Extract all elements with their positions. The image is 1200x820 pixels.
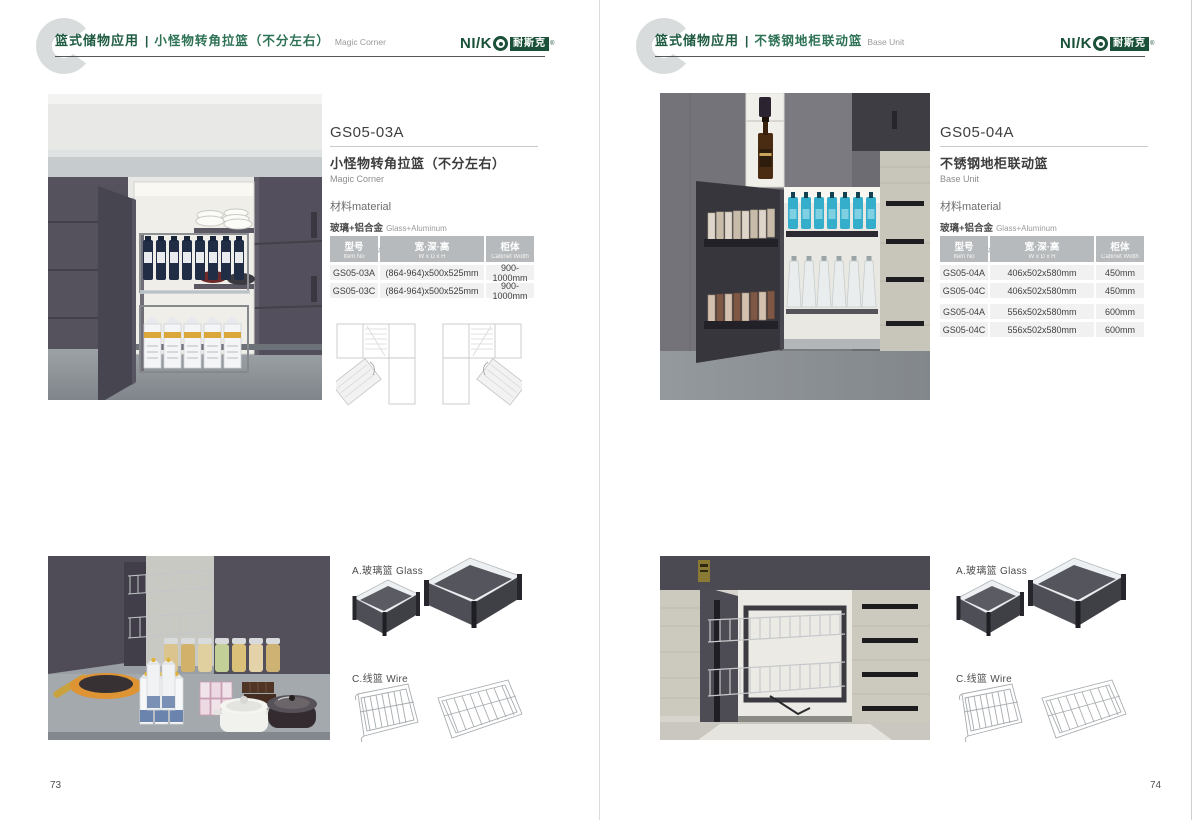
wire-basket-label: C.线篮 Wire: [352, 670, 408, 685]
page-number: 74: [1150, 780, 1161, 791]
wire-basket-image: [350, 676, 525, 746]
table-row: GS05-03A (864-964)x500x525mm 900-1000mm: [330, 265, 534, 280]
table-cell: GS05-04C: [940, 322, 988, 337]
photo-base-unit-open: [660, 93, 930, 400]
catalog-page-right: 篮式储物应用|不锈钢地柜联动篮Base Unit NI/K 耐斯克 ®: [600, 0, 1200, 820]
table-cell: 900-1000mm: [486, 265, 534, 280]
table-row: GS05-04C 556x502x580mm 600mm: [940, 322, 1144, 337]
product-name-en: Magic Corner: [330, 174, 545, 184]
table-header-cell: 宽·深·高W x D x H: [990, 236, 1094, 262]
table-header-cell: 柜体Cabinet Width: [1096, 236, 1144, 262]
logo-wordmark: NI/K: [460, 36, 492, 51]
corner-diagrams: [336, 318, 522, 413]
logo-registered-mark: ®: [1150, 41, 1154, 47]
table-cell: 406x502x580mm: [990, 283, 1094, 298]
material-line: 玻璃+铝合金Glass+Aluminum: [940, 218, 1155, 236]
table-header-cell: 型号Item No: [940, 236, 988, 262]
table-cell: 406x502x580mm: [990, 265, 1094, 280]
table-cell: 450mm: [1096, 283, 1144, 298]
glass-basket-label: A.玻璃篮 Glass: [352, 562, 423, 577]
product-model: GS05-03A: [330, 124, 545, 141]
logo-wordmark: NI/K: [1060, 36, 1092, 51]
photo-magic-corner-open: [48, 94, 322, 400]
material-label: 材料material: [940, 198, 1155, 214]
catalog-page-left: 篮式储物应用|小怪物转角拉篮（不分左右）Magic Corner NI/K 耐斯…: [0, 0, 600, 820]
product-model: GS05-04A: [940, 124, 1155, 141]
table-header-row: 型号Item No 宽·深·高W x D x H 柜体Cabinet Width: [940, 236, 1144, 262]
table-cell: (864-964)x500x525mm: [380, 283, 484, 298]
page-number: 73: [50, 780, 61, 791]
table-header-row: 型号Item No 宽·深·高W x D x H 柜体Cabinet Width: [330, 236, 534, 262]
product-name-en: Base Unit: [940, 174, 1155, 184]
page-header: 篮式储物应用|不锈钢地柜联动篮Base Unit: [655, 33, 904, 49]
table-cell: GS05-04C: [940, 283, 988, 298]
table-header-cell: 宽·深·高W x D x H: [380, 236, 484, 262]
header-rule: [655, 56, 1145, 57]
table-cell: GS05-04A: [940, 304, 988, 319]
table-cell: 556x502x580mm: [990, 322, 1094, 337]
product-name-cn: 小怪物转角拉篮（不分左右）: [330, 153, 545, 172]
header-category: 篮式储物应用: [55, 33, 139, 48]
table-cell: 600mm: [1096, 304, 1144, 319]
table-row: GS05-04A 406x502x580mm 450mm: [940, 265, 1144, 280]
table-cell: 900-1000mm: [486, 283, 534, 298]
table-cell: GS05-04A: [940, 265, 988, 280]
table-cell: GS05-03A: [330, 265, 378, 280]
logo-cn: 耐斯克: [1110, 37, 1149, 51]
material-line: 玻璃+铝合金Glass+Aluminum: [330, 218, 545, 236]
header-divider: |: [145, 34, 148, 48]
material-label: 材料material: [330, 198, 545, 214]
spec-table: 型号Item No 宽·深·高W x D x H 柜体Cabinet Width…: [330, 236, 534, 301]
header-title-en: Magic Corner: [335, 37, 386, 47]
material-cn: 玻璃+铝合金: [940, 223, 993, 234]
table-header-cell: 柜体Cabinet Width: [486, 236, 534, 262]
wire-basket-label: C.线篮 Wire: [956, 670, 1012, 685]
page-divider: [599, 0, 600, 820]
catalog-spread: 篮式储物应用|小怪物转角拉篮（不分左右）Magic Corner NI/K 耐斯…: [0, 0, 1200, 820]
table-row: GS05-04A 556x502x580mm 600mm: [940, 304, 1144, 319]
material-cn: 玻璃+铝合金: [330, 223, 383, 234]
table-header-cell: 型号Item No: [330, 236, 378, 262]
header-rule: [55, 56, 545, 57]
logo-registered-mark: ®: [550, 41, 554, 47]
nisko-logo: NI/K 耐斯克 ®: [1060, 36, 1154, 51]
table-cell: 600mm: [1096, 322, 1144, 337]
page-header: 篮式储物应用|小怪物转角拉篮（不分左右）Magic Corner: [55, 33, 386, 49]
header-title-cn: 小怪物转角拉篮（不分左右）: [154, 34, 330, 48]
header-category: 篮式储物应用: [655, 33, 739, 48]
table-cell: 450mm: [1096, 265, 1144, 280]
wire-basket-image: [954, 676, 1129, 746]
table-cell: (864-964)x500x525mm: [380, 265, 484, 280]
photo-corner-baskets-scene: [48, 556, 330, 740]
table-cell: GS05-03C: [330, 283, 378, 298]
material-en: Glass+Aluminum: [996, 224, 1057, 233]
page-edge: [1191, 0, 1192, 820]
table-cell: 556x502x580mm: [990, 304, 1094, 319]
header-title-en: Base Unit: [867, 37, 904, 47]
table-row: GS05-03C (864-964)x500x525mm 900-1000mm: [330, 283, 534, 298]
spec-table: 型号Item No 宽·深·高W x D x H 柜体Cabinet Width…: [940, 236, 1144, 340]
nisko-logo: NI/K 耐斯克 ®: [460, 36, 554, 51]
model-underline: [330, 146, 538, 147]
logo-cn: 耐斯克: [510, 37, 549, 51]
model-underline: [940, 146, 1148, 147]
material-en: Glass+Aluminum: [386, 224, 447, 233]
logo-o-icon: [493, 36, 508, 51]
photo-base-unit-wire-baskets: [660, 556, 930, 740]
product-name-cn: 不锈钢地柜联动篮: [940, 153, 1155, 172]
header-title-cn: 不锈钢地柜联动篮: [754, 34, 862, 48]
table-row: GS05-04C 406x502x580mm 450mm: [940, 283, 1144, 298]
header-divider: |: [745, 34, 748, 48]
glass-basket-label: A.玻璃篮 Glass: [956, 562, 1027, 577]
logo-o-icon: [1093, 36, 1108, 51]
